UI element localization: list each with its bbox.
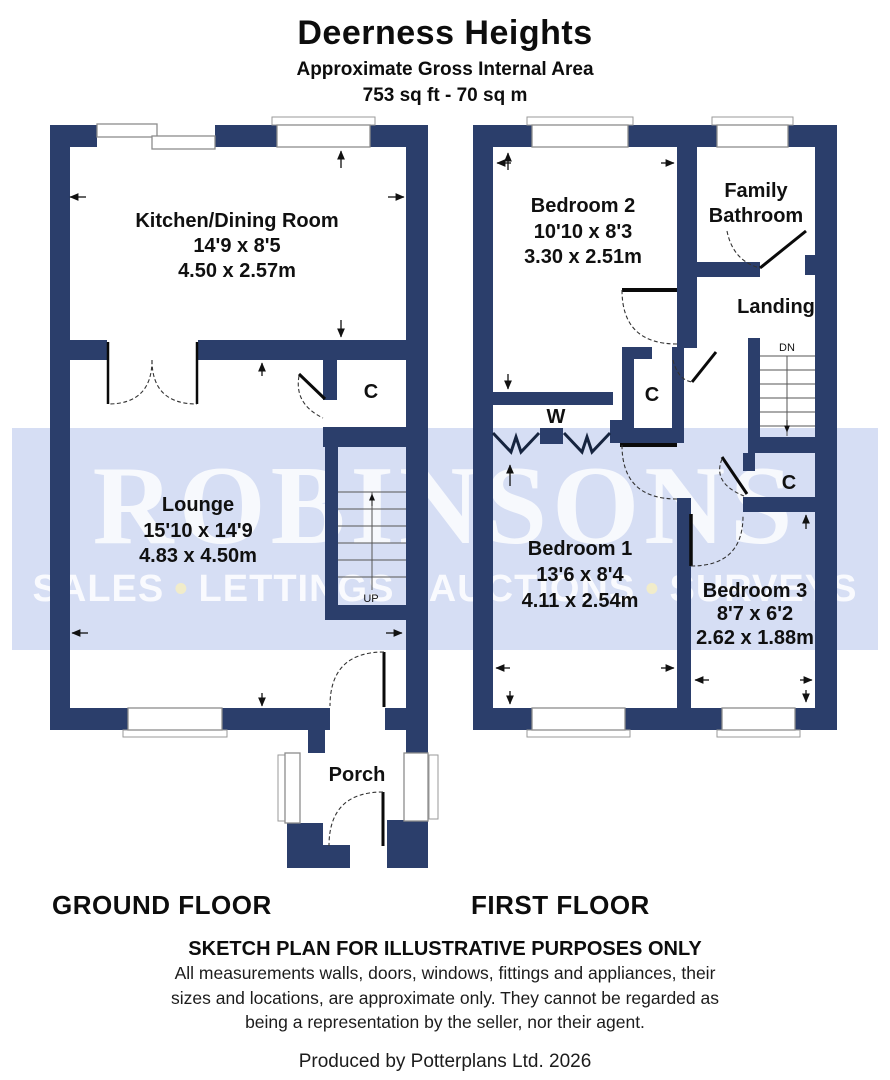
window: [532, 708, 625, 730]
room-size-imperial: 14'9 x 8'5: [193, 235, 280, 257]
bifold-door: [564, 433, 610, 452]
room-name: Lounge: [162, 494, 234, 516]
first-stairs: DN: [760, 342, 815, 436]
window: [277, 125, 370, 147]
room-size-metric: 3.30 x 2.51m: [524, 246, 642, 268]
ground-floor-label: GROUND FLOOR: [52, 890, 272, 921]
door-swing-arc: [108, 360, 152, 404]
sketch-disclaimer-title: SKETCH PLAN FOR ILLUSTRATIVE PURPOSES ON…: [0, 938, 890, 961]
room-size-imperial: 8'7 x 6'2: [717, 603, 793, 625]
door-swing-arc: [330, 652, 384, 706]
ground-room-labels: Kitchen/Dining Room 14'9 x 8'5 4.50 x 2.…: [135, 210, 385, 786]
door-swing-arc: [622, 445, 677, 499]
ground-stairs: UP: [338, 492, 406, 605]
floorplan-page: Deerness Heights Approximate Gross Inter…: [0, 0, 890, 1080]
room-size-metric: 4.50 x 2.57m: [178, 260, 296, 282]
door-swing-arc: [720, 459, 744, 496]
door-leaf: [299, 374, 325, 399]
window: [285, 753, 300, 823]
room-size-metric: 4.83 x 4.50m: [139, 545, 257, 567]
wardrobe-label: W: [547, 406, 566, 428]
ground-floor-plan: UP Kitchen/Dining Room 14'9 x 8'5 4.50 x…: [50, 117, 438, 868]
first-floor-label: FIRST FLOOR: [471, 890, 650, 921]
producer-credit: Produced by Potterplans Ltd. 2026: [0, 1051, 890, 1073]
door-swing-arc: [152, 360, 197, 404]
door-swing-arc: [329, 792, 383, 846]
room-name: Bedroom 1: [528, 538, 632, 560]
room-name: Porch: [329, 764, 386, 786]
first-floor-plan: DN Bedroom 2 10'10 x 8'3 3.30 x 2.51m: [473, 117, 837, 737]
room-name: Bedroom 3: [703, 580, 807, 602]
first-room-labels: Bedroom 2 10'10 x 8'3 3.30 x 2.51m Famil…: [522, 180, 815, 649]
window: [404, 753, 428, 821]
room-size-imperial: 13'6 x 8'4: [536, 564, 624, 586]
stairs-up-label: UP: [363, 593, 378, 605]
door-leaf: [760, 231, 806, 268]
door-swing-arc: [691, 516, 743, 566]
door-swing-arc: [298, 376, 323, 418]
room-name: Landing: [737, 296, 815, 318]
window: [722, 708, 795, 730]
room-size-metric: 4.11 x 2.54m: [522, 590, 639, 612]
window: [97, 124, 157, 137]
room-name: Kitchen/Dining Room: [135, 210, 338, 232]
room-name: Family: [724, 180, 788, 202]
room-size-imperial: 10'10 x 8'3: [534, 221, 633, 243]
disclaimer-line: sizes and locations, are approximate onl…: [0, 988, 890, 1009]
window: [152, 136, 215, 149]
window: [128, 708, 222, 730]
stairs-down-label: DN: [779, 342, 795, 354]
window: [717, 125, 788, 147]
door-swing-arc: [622, 290, 677, 344]
room-name: Bedroom 2: [531, 195, 635, 217]
window: [532, 125, 628, 147]
room-name: Bathroom: [709, 205, 803, 227]
cupboard-label: C: [364, 381, 378, 403]
bifold-door: [493, 433, 539, 452]
cupboard-label: C: [782, 472, 796, 494]
cupboard-label: C: [645, 384, 659, 406]
room-size-metric: 2.62 x 1.88m: [696, 627, 814, 649]
disclaimer-line: being a representation by the seller, no…: [0, 1012, 890, 1033]
door-leaf: [692, 352, 716, 382]
disclaimer-line: All measurements walls, doors, windows, …: [0, 963, 890, 984]
room-size-imperial: 15'10 x 14'9: [143, 520, 253, 542]
